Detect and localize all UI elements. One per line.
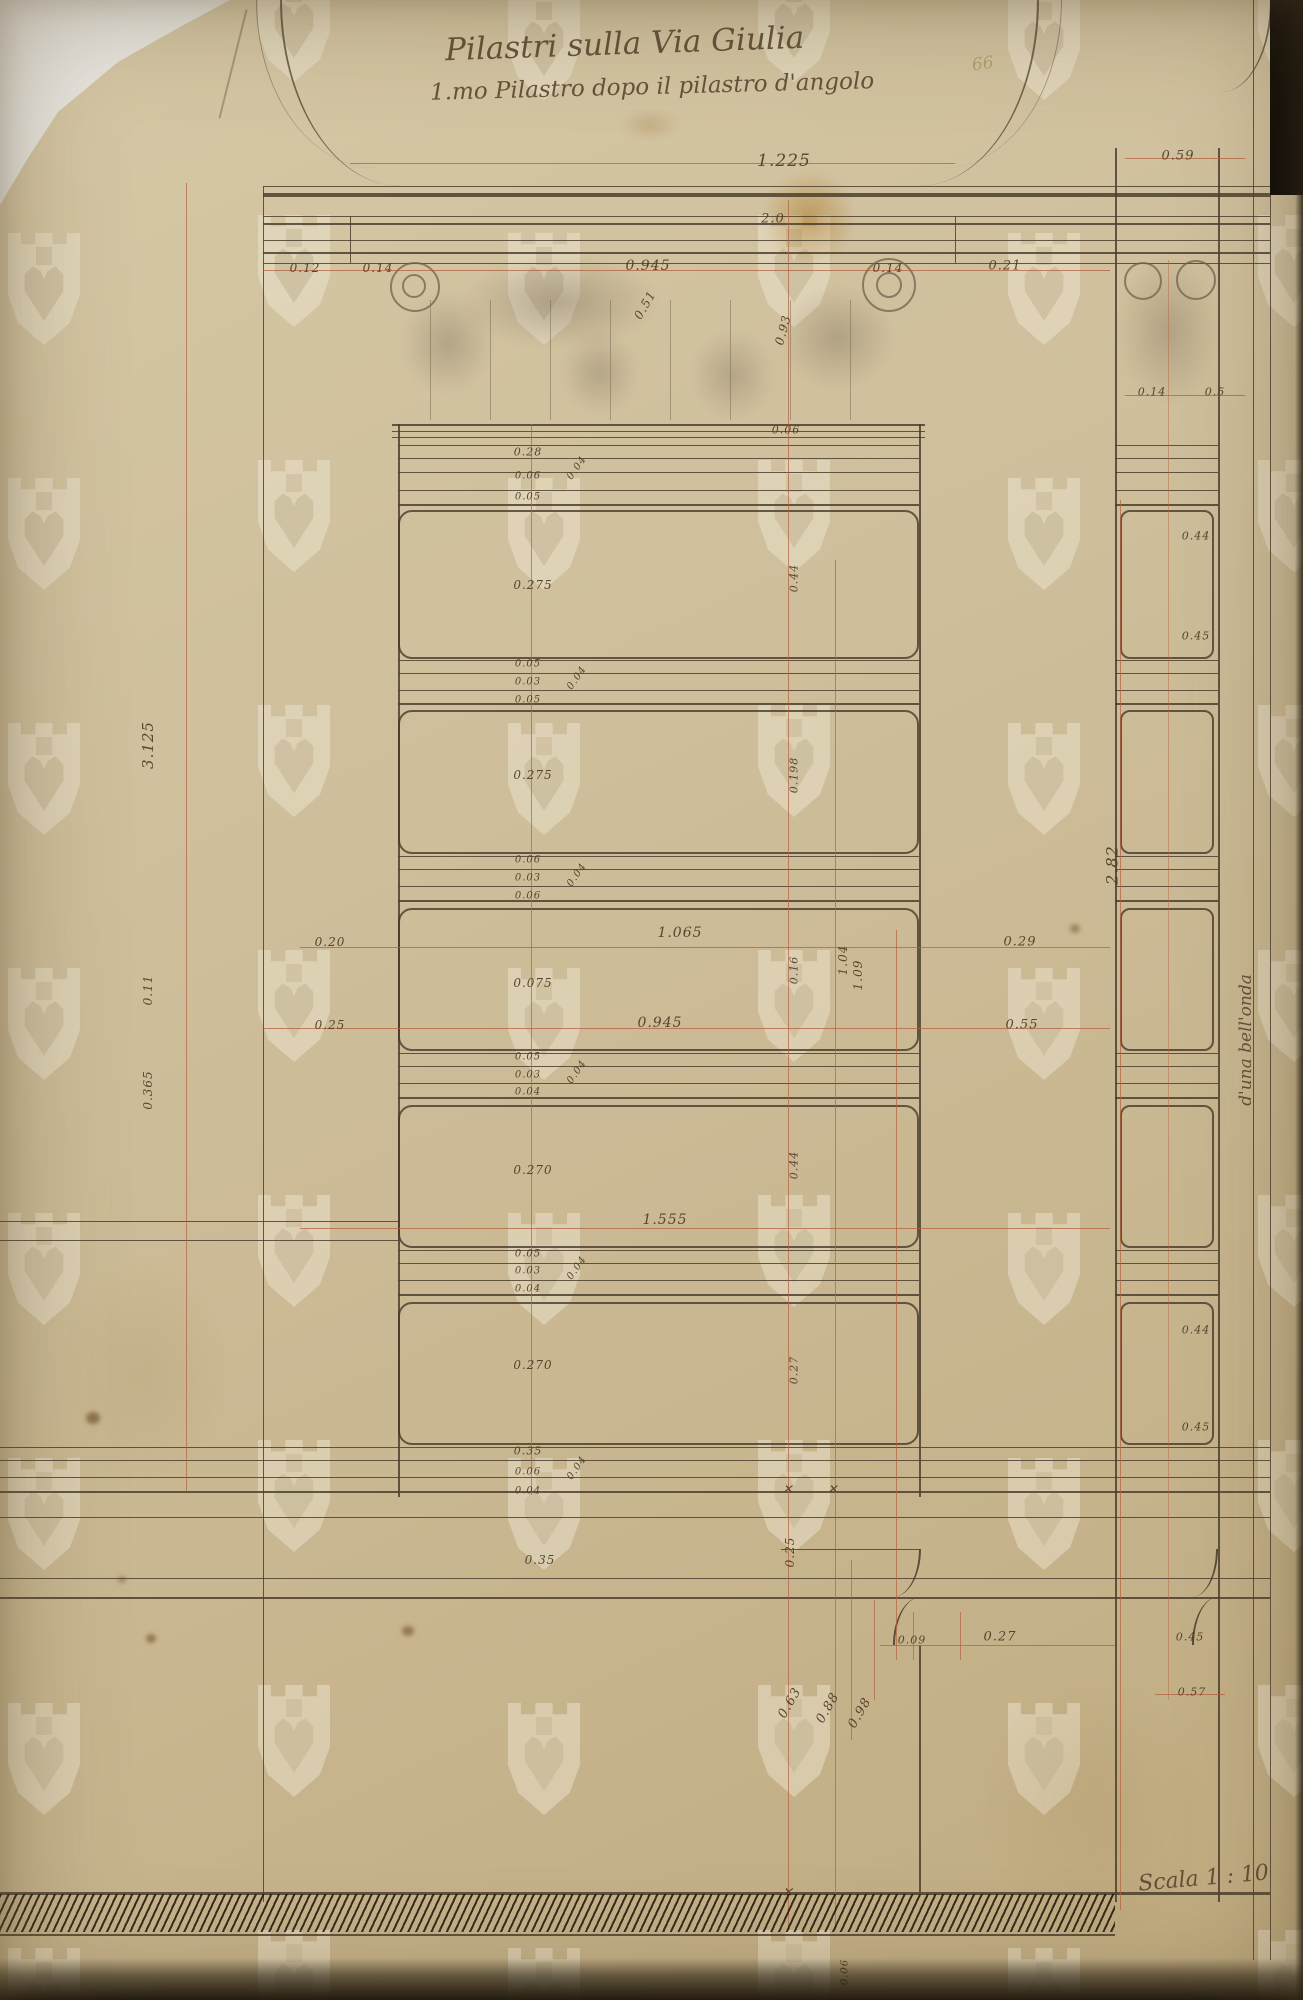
dimension-label: 0.06 bbox=[515, 855, 541, 866]
dimension-label: 0.59 bbox=[1162, 149, 1195, 164]
dimension-label: 2.0 bbox=[761, 212, 785, 227]
dimension-label: 0.06 bbox=[515, 891, 541, 902]
dimension-label: 1.065 bbox=[657, 925, 702, 941]
dimension-label: 0.98 bbox=[845, 1695, 874, 1731]
dimension-label: 0.44 bbox=[1182, 530, 1211, 543]
dimension-label: 0.11 bbox=[141, 975, 155, 1006]
dimension-label: 0.28 bbox=[514, 446, 543, 459]
dimension-label: 1.555 bbox=[642, 1212, 687, 1228]
dimension-label: 2.82 bbox=[1103, 845, 1122, 885]
dimension-label: 0.06 bbox=[515, 471, 541, 482]
dimension-label: 0.27 bbox=[984, 1630, 1017, 1645]
dimension-label: 0.35 bbox=[525, 1553, 556, 1567]
dimension-label: 1.09 bbox=[851, 960, 865, 991]
dimension-label: 0.93 bbox=[772, 313, 793, 346]
dimension-label: 0.09 bbox=[898, 1634, 927, 1647]
dimension-label: 0.03 bbox=[515, 1266, 541, 1277]
dimension-label: 0.44 bbox=[1182, 1324, 1211, 1337]
dimension-label: 0.63 bbox=[775, 1685, 804, 1721]
dimension-label: 0.04 bbox=[565, 664, 589, 692]
dimension-label: 0.04 bbox=[515, 1284, 541, 1295]
dimension-label: 0.27 bbox=[788, 1356, 801, 1385]
dimension-label: 0.04 bbox=[565, 1058, 589, 1086]
dimension-label: 0.55 bbox=[1006, 1018, 1039, 1033]
dimension-label: 0.45 bbox=[1176, 1631, 1205, 1644]
dimension-layer: 1.2250.592.00.120.140.9450.140.210.510.9… bbox=[0, 0, 1303, 2000]
photo-backdrop-edge bbox=[1295, 0, 1303, 2000]
dimension-label: 3.125 bbox=[139, 721, 157, 769]
dimension-label: 0.14 bbox=[363, 261, 394, 275]
dimension-label: 0.04 bbox=[515, 1486, 541, 1497]
dimension-label: 0.16 bbox=[788, 956, 801, 985]
dimension-label: 0.04 bbox=[565, 1454, 589, 1482]
dimension-label: 0.45 bbox=[1182, 1421, 1211, 1434]
dimension-label: 0.21 bbox=[989, 259, 1022, 274]
dimension-label: 0.57 bbox=[1178, 1686, 1207, 1699]
dimension-label: 0.04 bbox=[565, 1254, 589, 1282]
dimension-label: 0.05 bbox=[515, 492, 541, 503]
dimension-label: 0.365 bbox=[141, 1070, 155, 1109]
dimension-label: 0.45 bbox=[1182, 630, 1211, 643]
dimension-label: ✕ bbox=[782, 1482, 793, 1496]
dimension-label: 0.25 bbox=[783, 1537, 797, 1568]
dimension-label: 0.198 bbox=[788, 757, 801, 794]
dimension-label: 0.06 bbox=[772, 424, 801, 437]
dimension-label: 0.945 bbox=[625, 258, 670, 274]
dimension-label: 0.05 bbox=[515, 695, 541, 706]
dimension-label: ✕ bbox=[827, 1482, 838, 1496]
dimension-label: 0.05 bbox=[515, 1052, 541, 1063]
dimension-label: 0.04 bbox=[515, 1087, 541, 1098]
dimension-label: 0.275 bbox=[513, 578, 552, 592]
dimension-label: 0.03 bbox=[515, 873, 541, 884]
drawing-sheet: Pilastri sulla Via Giulia 1.mo Pilastro … bbox=[0, 0, 1303, 2000]
dimension-label: 0.51 bbox=[631, 288, 658, 322]
dimension-label: 0.44 bbox=[788, 564, 801, 593]
dimension-label: 0.14 bbox=[1138, 386, 1167, 399]
dimension-label: 0.03 bbox=[515, 677, 541, 688]
dimension-label: 0.945 bbox=[637, 1015, 682, 1031]
dimension-label: 0.88 bbox=[813, 1690, 842, 1726]
dimension-label: 0.5 bbox=[1205, 386, 1226, 399]
dimension-label: 1.225 bbox=[757, 151, 811, 171]
dimension-label: 0.05 bbox=[515, 1249, 541, 1260]
dimension-label: 0.12 bbox=[290, 261, 321, 275]
dimension-label: 0.270 bbox=[513, 1358, 552, 1372]
dimension-label: 1.04 bbox=[836, 945, 850, 976]
dimension-label: 0.44 bbox=[788, 1151, 801, 1180]
dimension-label: 0.05 bbox=[515, 659, 541, 670]
dimension-label: 0.29 bbox=[1004, 935, 1037, 950]
dimension-label: 0.275 bbox=[513, 768, 552, 782]
dimension-label: 0.35 bbox=[514, 1445, 543, 1458]
dimension-label: 0.270 bbox=[513, 1163, 552, 1177]
ground-hatching bbox=[0, 1894, 1115, 1932]
dimension-label: 0.25 bbox=[315, 1018, 346, 1032]
dimension-label: 0.20 bbox=[315, 935, 346, 949]
photo-backdrop-edge bbox=[0, 1958, 1303, 2000]
dimension-label: 0.04 bbox=[565, 861, 589, 889]
dimension-label: 0.14 bbox=[873, 261, 904, 275]
dimension-label: 0.06 bbox=[515, 1467, 541, 1478]
dimension-label: 0.075 bbox=[513, 976, 552, 990]
dimension-label: 0.03 bbox=[515, 1070, 541, 1081]
dimension-label: 0.04 bbox=[565, 454, 589, 482]
